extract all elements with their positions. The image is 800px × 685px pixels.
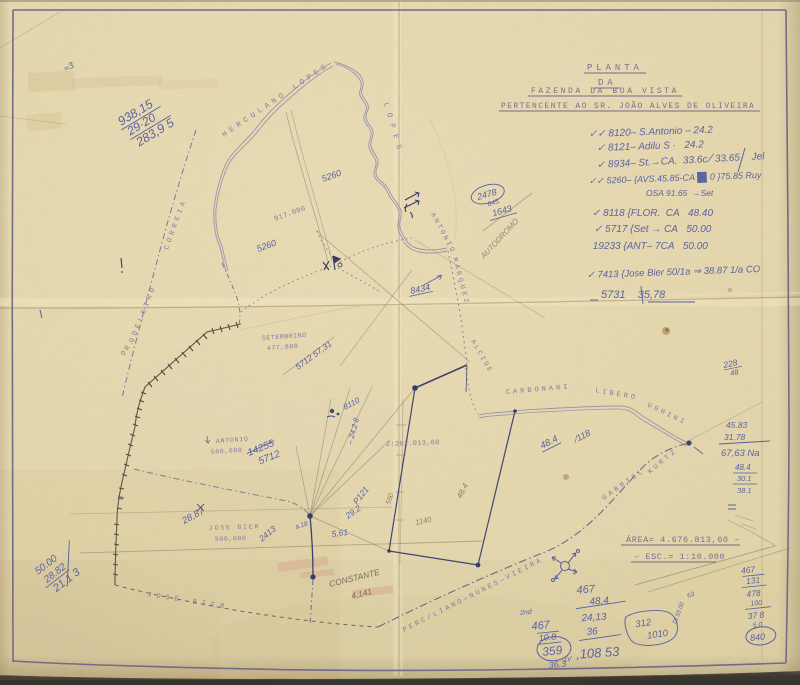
svg-text:38.1: 38.1 [737,486,752,495]
svg-text:19233 {ANT– 7CA 50.00: 19233 {ANT– 7CA 50.00 [590,241,708,252]
svg-text:467: 467 [576,583,596,596]
svg-text:OSA 91.65 →Set: OSA 91.65 →Set [646,188,714,198]
svg-text:840: 840 [750,632,766,644]
svg-text:312: 312 [635,617,653,630]
svg-text:2nd: 2nd [519,609,533,617]
svg-text:PERTENCENTE AO SR. JOÃO ALVES: PERTENCENTE AO SR. JOÃO ALVES DE OLIVEIR… [501,102,755,111]
svg-text:36: 36 [586,626,598,638]
svg-text:– ESC.= 1:10.000: – ESC.= 1:10.000 [634,552,725,562]
svg-text:5731 35,78: 5731 35,78 [601,289,666,301]
svg-text:37 8: 37 8 [747,609,765,621]
svg-text:24,13: 24,13 [580,612,607,625]
svg-text:48.4: 48.4 [735,463,751,472]
svg-text:✓ 5717 {Set → CA 50.00: ✓ 5717 {Set → CA 50.00 [594,224,712,235]
svg-text:31.78: 31.78 [724,432,746,442]
svg-text:100: 100 [750,600,762,608]
svg-text:67,63 Na: 67,63 Na [721,448,760,459]
svg-text:467: 467 [531,619,551,633]
svg-text:45.83: 45.83 [726,420,748,430]
svg-text:,108 53: ,108 53 [576,644,621,662]
svg-text:30.1: 30.1 [737,474,752,483]
svg-text:PLANTA: PLANTA [587,63,643,73]
svg-text:467: 467 [740,564,755,575]
svg-text:131: 131 [746,575,761,586]
svg-text:500,000: 500,000 [215,535,247,543]
svg-text:359: 359 [542,643,564,659]
svg-text:ÁREA= 4.676.813,60 –: ÁREA= 4.676.813,60 – [626,534,740,545]
svg-text:✓ 8118 {FLOR. CA 48.40: ✓ 8118 {FLOR. CA 48.40 [592,208,713,219]
svg-text:478: 478 [746,588,761,599]
svg-text:FAZENDA DA BOA VISTA: FAZENDA DA BOA VISTA [531,87,679,96]
svg-text:36.3: 36.3 [548,659,566,671]
